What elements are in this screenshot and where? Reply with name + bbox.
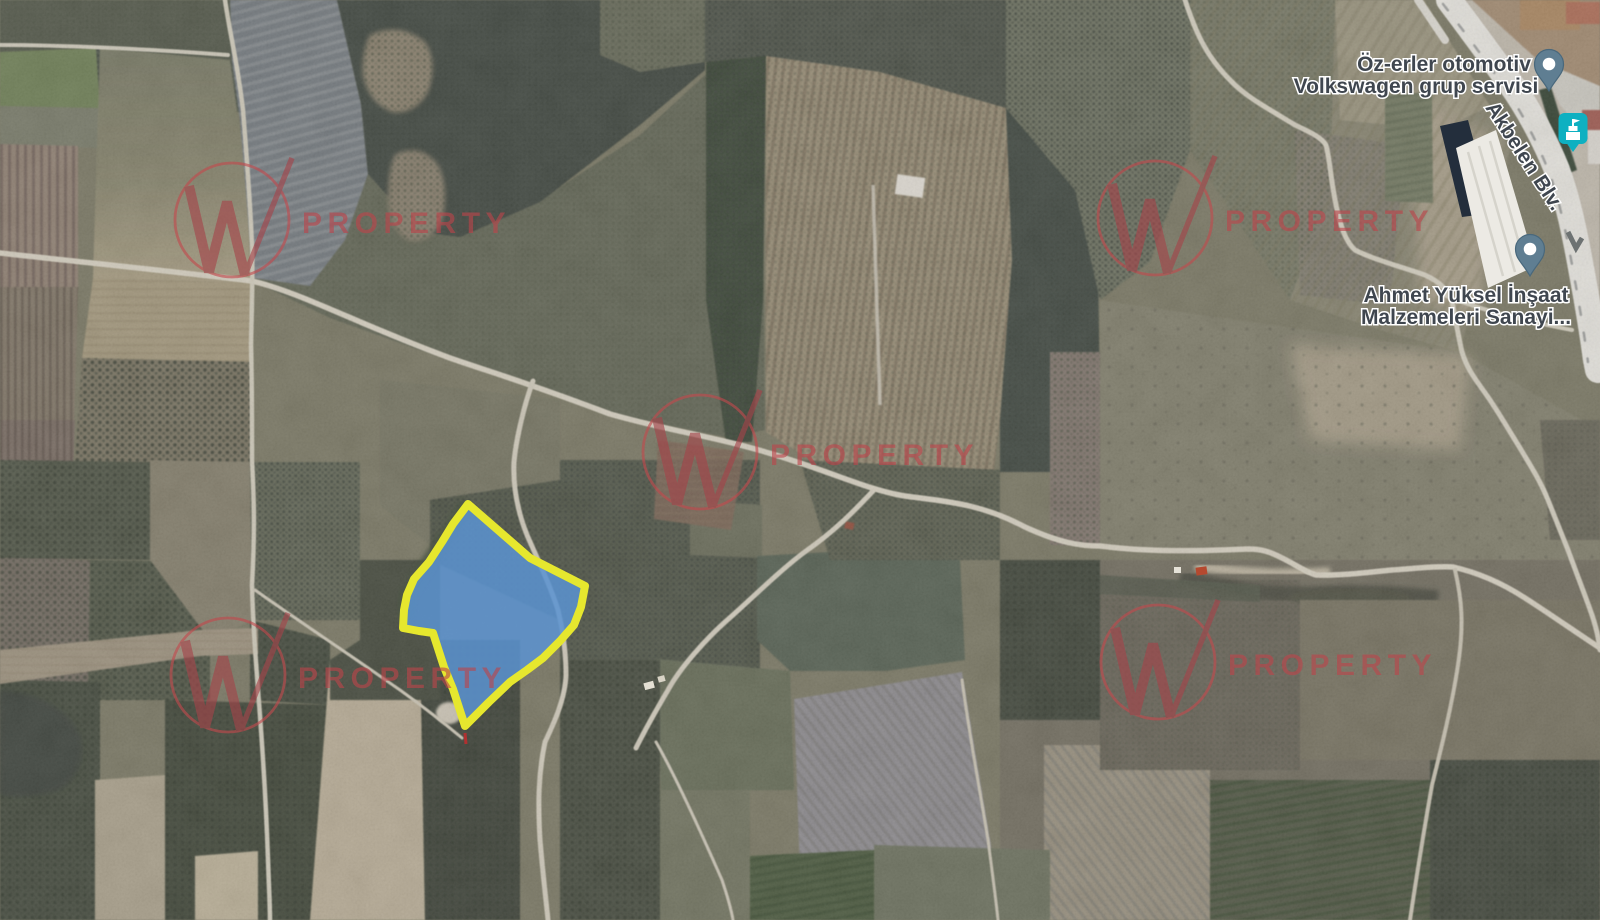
svg-text:Volkswagen grup servisi: Volkswagen grup servisi xyxy=(1294,75,1539,98)
svg-text:Malzemeleri Sanayi...: Malzemeleri Sanayi... xyxy=(1361,306,1571,329)
svg-text:Ahmet Yüksel İnşaat: Ahmet Yüksel İnşaat xyxy=(1363,284,1568,307)
svg-text:Öz-erler otomotiv: Öz-erler otomotiv xyxy=(1357,53,1531,76)
